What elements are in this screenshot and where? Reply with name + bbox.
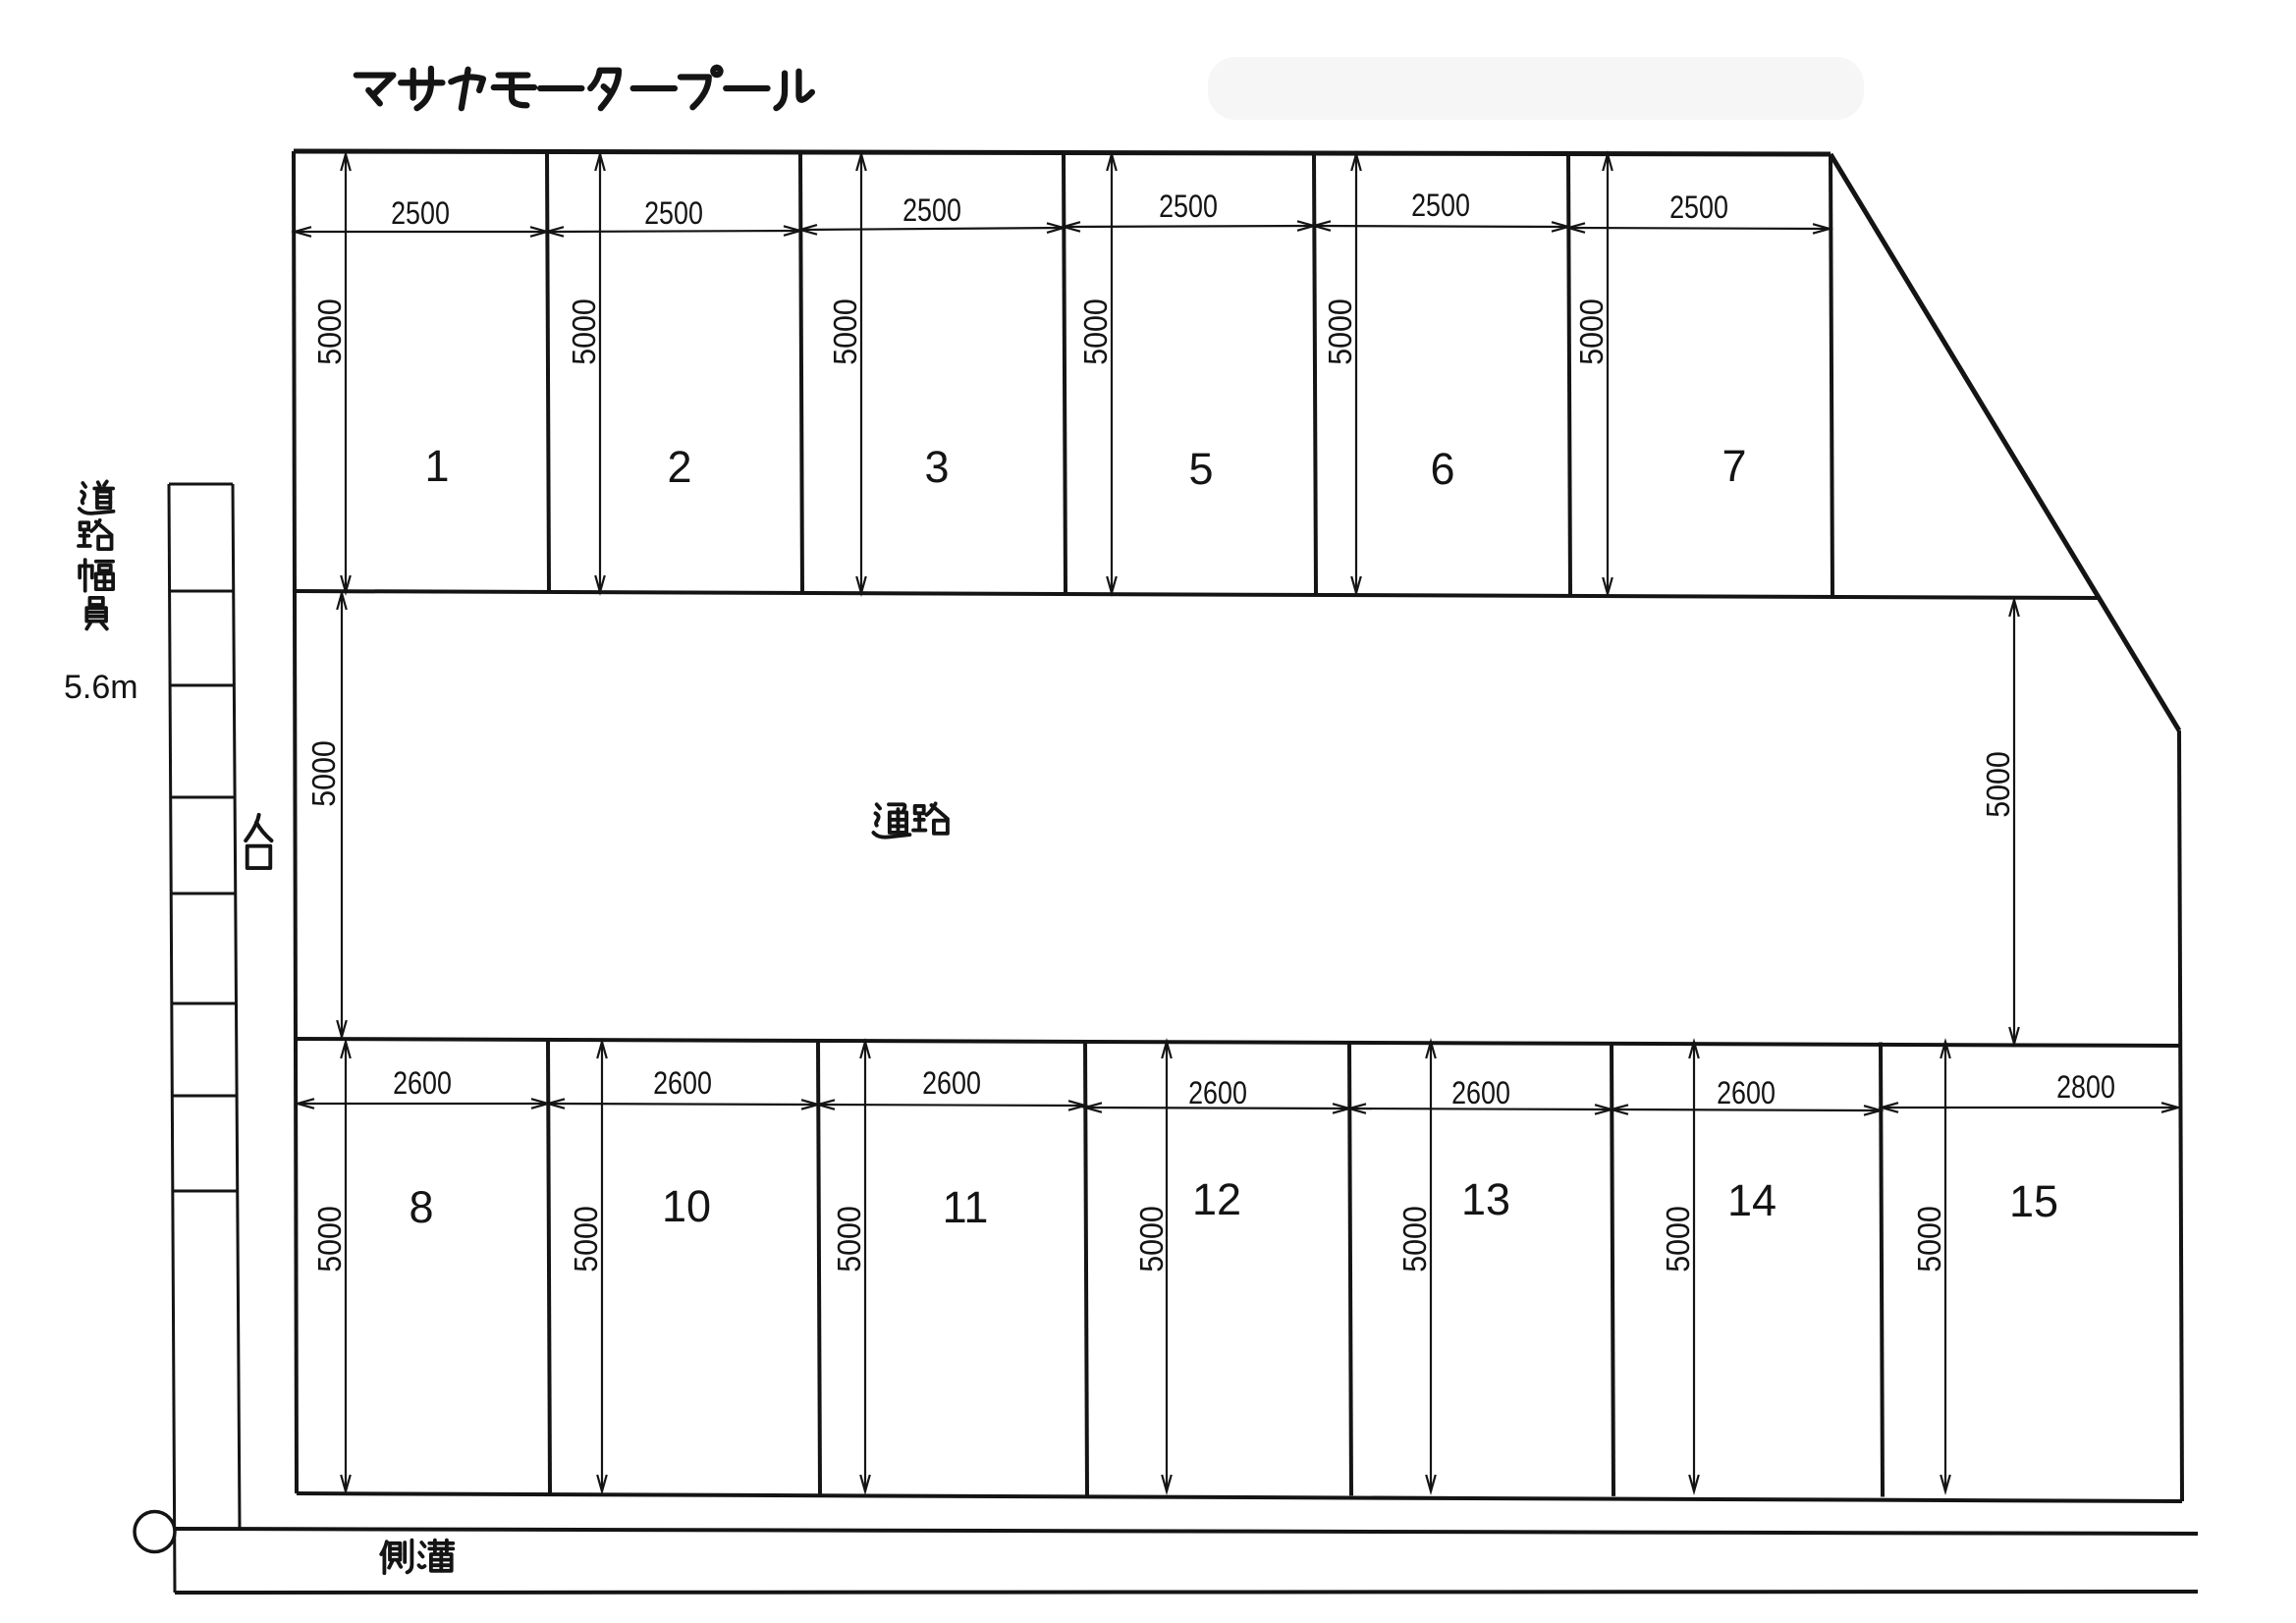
svg-text:5000: 5000 [568, 1206, 604, 1272]
svg-text:2500: 2500 [1669, 190, 1728, 226]
svg-text:5000: 5000 [827, 298, 863, 365]
svg-text:5000: 5000 [305, 740, 342, 807]
svg-text:3: 3 [924, 442, 949, 492]
svg-text:5000: 5000 [1133, 1206, 1170, 1272]
svg-text:5000: 5000 [566, 298, 602, 365]
svg-text:8: 8 [409, 1182, 433, 1232]
svg-text:5: 5 [1188, 444, 1213, 494]
svg-text:5000: 5000 [1396, 1206, 1433, 1272]
svg-text:7: 7 [1722, 441, 1746, 491]
svg-text:2600: 2600 [393, 1066, 452, 1102]
svg-text:5000: 5000 [311, 1206, 348, 1272]
svg-text:1: 1 [424, 441, 449, 491]
svg-text:14: 14 [1727, 1175, 1777, 1225]
svg-text:13: 13 [1461, 1174, 1510, 1224]
svg-text:12: 12 [1192, 1174, 1241, 1224]
svg-text:5000: 5000 [1980, 751, 2016, 818]
svg-text:2600: 2600 [1717, 1076, 1776, 1111]
svg-text:15: 15 [2009, 1176, 2058, 1226]
svg-text:2500: 2500 [391, 196, 450, 232]
svg-text:2500: 2500 [644, 196, 703, 232]
svg-text:2500: 2500 [902, 193, 961, 229]
svg-text:5000: 5000 [831, 1206, 867, 1272]
svg-text:6: 6 [1430, 444, 1454, 494]
svg-text:5000: 5000 [1077, 298, 1114, 365]
svg-text:2800: 2800 [2056, 1070, 2115, 1106]
svg-text:2600: 2600 [1188, 1076, 1247, 1111]
svg-text:10: 10 [662, 1181, 711, 1231]
svg-text:5000: 5000 [1322, 298, 1358, 365]
svg-text:5000: 5000 [1573, 298, 1610, 365]
svg-text:2500: 2500 [1159, 189, 1218, 225]
svg-text:5000: 5000 [311, 298, 348, 365]
svg-text:11: 11 [943, 1182, 989, 1232]
svg-text:5000: 5000 [1911, 1206, 1947, 1272]
svg-text:2600: 2600 [1451, 1076, 1510, 1111]
svg-text:5.6m: 5.6m [64, 669, 138, 706]
svg-text:2500: 2500 [1411, 189, 1470, 224]
svg-text:2600: 2600 [653, 1066, 712, 1102]
svg-text:2600: 2600 [922, 1066, 981, 1102]
svg-text:5000: 5000 [1660, 1206, 1696, 1272]
svg-text:2: 2 [667, 442, 691, 492]
